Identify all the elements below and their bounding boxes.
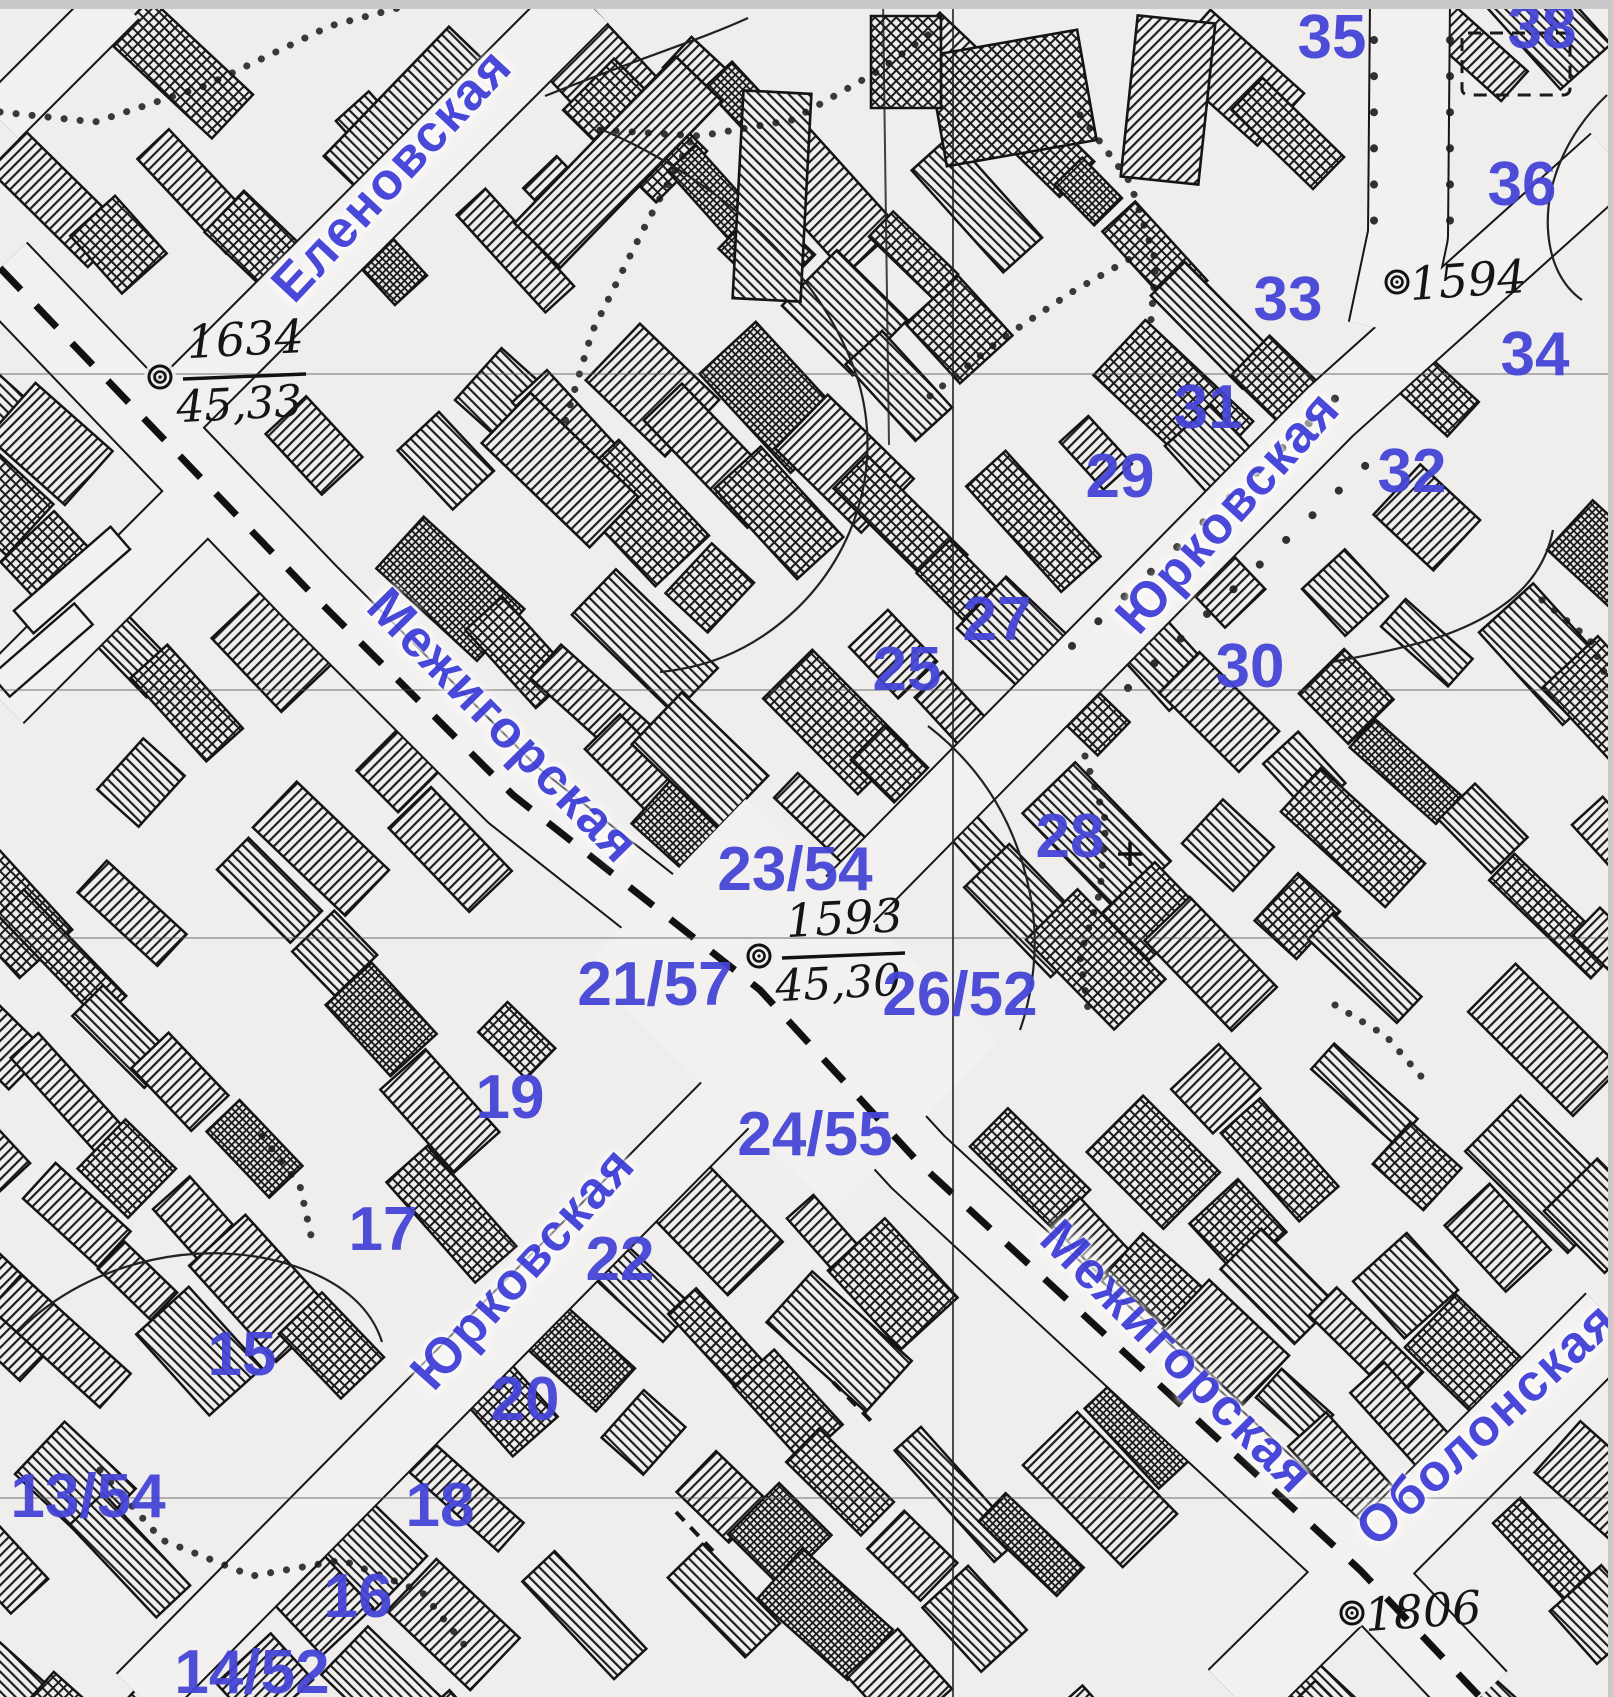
- scan-edge-right: [1608, 0, 1613, 1697]
- scan-edge-top: [0, 0, 1613, 9]
- svg-text:1593: 1593: [784, 888, 904, 948]
- svg-text:1594: 1594: [1408, 249, 1529, 311]
- svg-text:1634: 1634: [185, 309, 305, 369]
- svg-text:45,33: 45,33: [174, 376, 303, 434]
- svg-text:1806: 1806: [1363, 1580, 1484, 1642]
- map-linework: 163445,33159345,3015941806: [0, 0, 1613, 1697]
- map-canvas: 163445,33159345,3015941806 ЕленовскаяМеж…: [0, 0, 1613, 1697]
- svg-text:45,30: 45,30: [773, 955, 902, 1013]
